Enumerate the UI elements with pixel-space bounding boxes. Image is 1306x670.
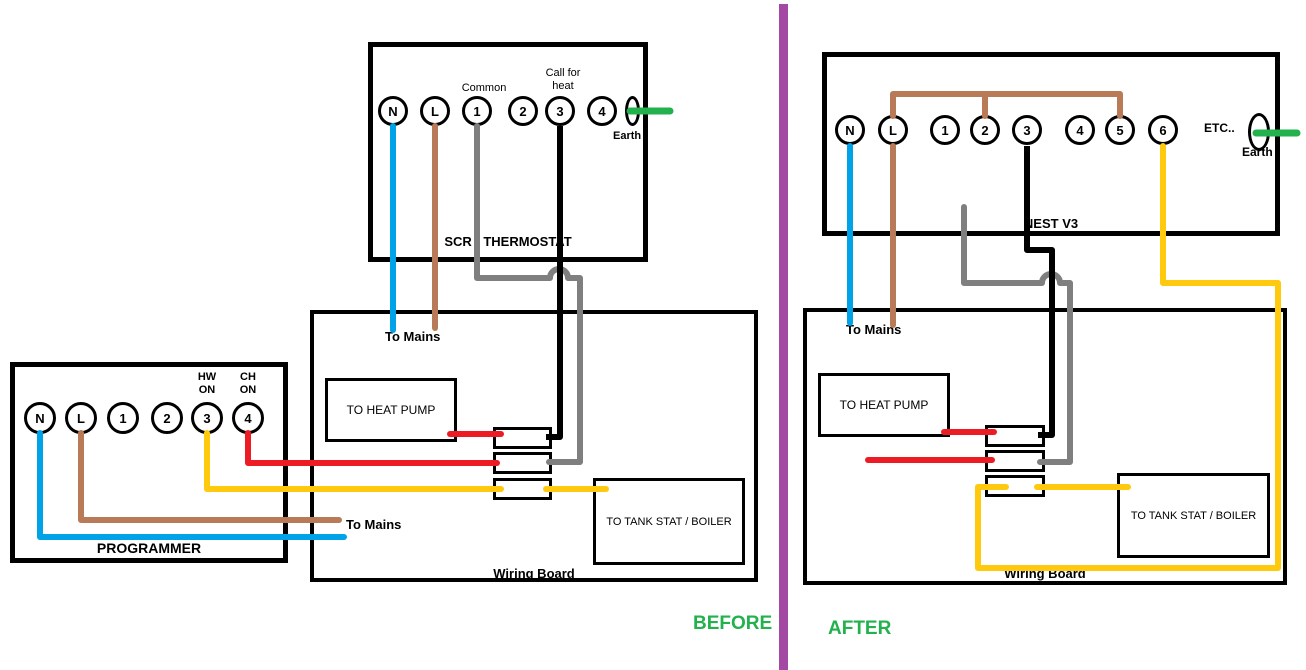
nest-terminal-l: L bbox=[878, 115, 908, 145]
nest-terminal-2: 2 bbox=[970, 115, 1000, 145]
after-terminal-block-1 bbox=[985, 425, 1045, 447]
programmer-terminal-4: 4 bbox=[232, 402, 264, 434]
before-to-mains-bottom-label: To Mains bbox=[346, 518, 401, 533]
after-wiring-board-label: Wiring Board bbox=[803, 567, 1287, 582]
thermostat-box-label: SCR - THERMOSTAT bbox=[368, 235, 648, 250]
before-terminal-block-2 bbox=[493, 452, 552, 474]
after-heat-pump-box: TO HEAT PUMP bbox=[818, 373, 950, 437]
programmer-terminal-1: 1 bbox=[107, 402, 139, 434]
nest-terminal-3: 3 bbox=[1012, 115, 1042, 145]
nest-terminal-6: 6 bbox=[1148, 115, 1178, 145]
programmer-terminal-2: 2 bbox=[151, 402, 183, 434]
before-tank-stat-box: TO TANK STAT / BOILER bbox=[593, 478, 745, 565]
nest-terminal-n: N bbox=[835, 115, 865, 145]
nest-earth-label: Earth bbox=[1242, 146, 1273, 160]
before-heat-pump-box: TO HEAT PUMP bbox=[325, 378, 457, 442]
thermostat-call-for-heat-label: Call for heat bbox=[538, 67, 588, 92]
nest-terminal-1: 1 bbox=[930, 115, 960, 145]
before-wiring-board-label: Wiring Board bbox=[310, 567, 758, 582]
after-terminal-block-2 bbox=[985, 450, 1045, 472]
thermostat-common-label: Common bbox=[458, 82, 510, 95]
programmer-ch-on-label: CH ON bbox=[231, 371, 265, 396]
nest-box-label: NEST V3 bbox=[822, 217, 1280, 232]
thermostat-earth-label: Earth bbox=[613, 130, 641, 143]
programmer-box-label: PROGRAMMER bbox=[10, 540, 288, 556]
before-to-mains-top-label: To Mains bbox=[385, 330, 440, 345]
programmer-terminal-n: N bbox=[24, 402, 56, 434]
before-terminal-block-1 bbox=[493, 427, 552, 449]
thermostat-terminal-1: 1 bbox=[462, 96, 492, 126]
nest-terminal-4: 4 bbox=[1065, 115, 1095, 145]
before-after-divider bbox=[779, 4, 788, 670]
scr-thermostat-box bbox=[368, 42, 648, 262]
thermostat-terminal-4: 4 bbox=[587, 96, 617, 126]
thermostat-terminal-n: N bbox=[378, 96, 408, 126]
before-caption: BEFORE bbox=[693, 613, 772, 635]
thermostat-terminal-2: 2 bbox=[508, 96, 538, 126]
programmer-terminal-3: 3 bbox=[191, 402, 223, 434]
wiring-diagram: N L 1 2 3 4 Common Call for heat Earth S… bbox=[0, 0, 1306, 670]
after-to-mains-label: To Mains bbox=[846, 323, 901, 338]
after-tank-stat-box: TO TANK STAT / BOILER bbox=[1117, 473, 1270, 558]
thermostat-earth-terminal bbox=[625, 96, 640, 126]
after-terminal-block-3 bbox=[985, 475, 1045, 497]
before-terminal-block-3 bbox=[493, 478, 552, 500]
thermostat-terminal-3: 3 bbox=[545, 96, 575, 126]
nest-etc-label: ETC.. bbox=[1204, 122, 1235, 136]
nest-terminal-5: 5 bbox=[1105, 115, 1135, 145]
programmer-terminal-l: L bbox=[65, 402, 97, 434]
thermostat-terminal-l: L bbox=[420, 96, 450, 126]
programmer-hw-on-label: HW ON bbox=[190, 371, 224, 396]
after-caption: AFTER bbox=[828, 618, 891, 640]
